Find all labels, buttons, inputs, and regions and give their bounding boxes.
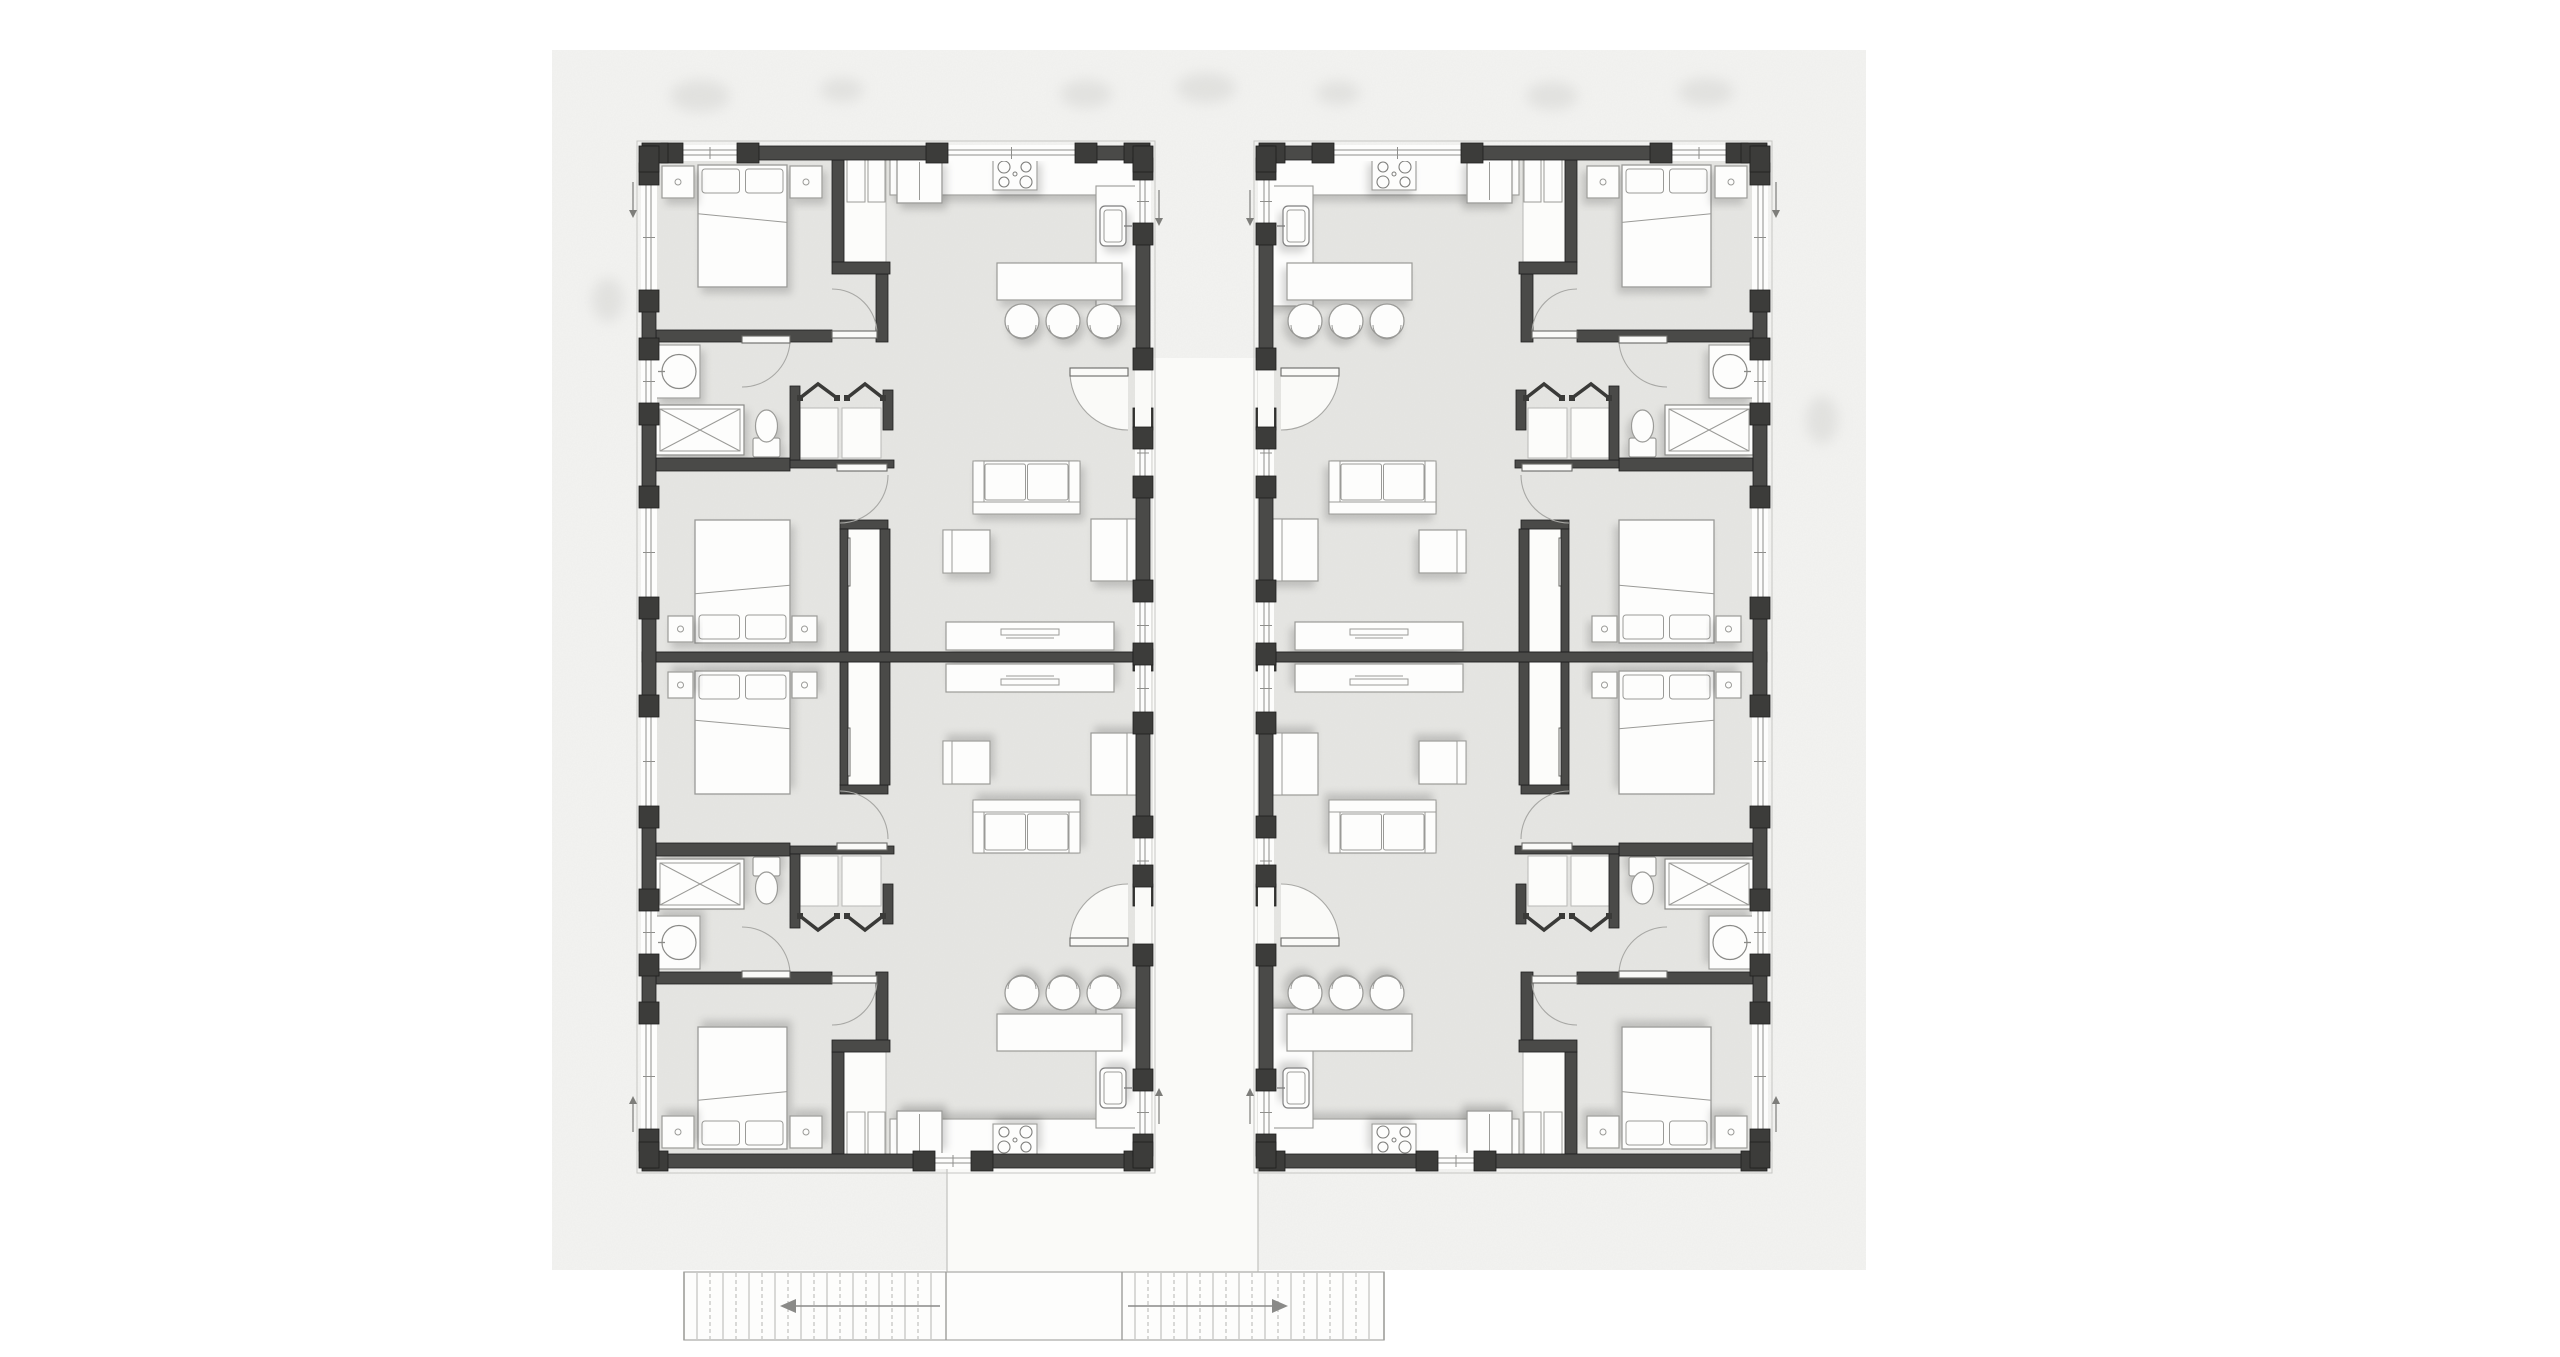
desk-top <box>1295 664 1463 692</box>
bedroom2-closet-bay <box>848 662 880 785</box>
wall-pier <box>1133 348 1153 370</box>
nightstand-top <box>790 166 822 198</box>
armchair <box>943 530 990 573</box>
armchair <box>1419 741 1466 784</box>
wall-pier <box>1750 806 1770 828</box>
door-leaf <box>1619 971 1667 978</box>
bifold-pivot <box>834 395 840 401</box>
door-opening <box>1258 887 1274 944</box>
wall-pier <box>1256 712 1276 734</box>
toilet-bowl <box>1632 410 1654 442</box>
nightstand-top <box>1587 1116 1619 1148</box>
nightstand-top <box>792 616 817 642</box>
nightstand-top <box>1592 672 1617 698</box>
interior-wall <box>832 1040 890 1052</box>
door-leaf <box>742 336 790 343</box>
toilet-bowl <box>756 410 778 442</box>
wall-pier <box>1256 223 1276 245</box>
bar-stool <box>1087 975 1121 1010</box>
floor-plan-svg <box>0 0 2560 1357</box>
nightstand-top <box>792 672 817 698</box>
door-leaf <box>742 971 790 978</box>
sofa-cushion <box>985 814 1026 850</box>
sofa-cushion <box>1384 814 1425 850</box>
armchair <box>1273 519 1318 581</box>
bifold-pivot <box>1559 395 1565 401</box>
toilet <box>753 857 780 904</box>
bedroom2-closet-bay <box>1529 529 1561 652</box>
kitchen-island <box>1287 263 1412 300</box>
sofa-cushion <box>1341 464 1382 500</box>
bar-stool <box>1288 975 1322 1010</box>
pillow <box>699 615 740 639</box>
bar-stool <box>1370 304 1404 339</box>
interior-wall <box>1519 262 1577 274</box>
kitchen-island <box>997 1014 1122 1051</box>
door-opening <box>1258 370 1274 427</box>
wall-pier <box>737 143 759 163</box>
wardrobe-panel <box>1524 1112 1541 1156</box>
nightstand <box>790 166 822 198</box>
wall-corner <box>1133 1142 1153 1168</box>
bar-stool <box>1288 304 1322 339</box>
bed-primary <box>698 165 787 287</box>
keyboard <box>1001 679 1059 685</box>
interior-wall <box>656 458 790 471</box>
wall-pier <box>639 806 659 828</box>
tree-shadow <box>1060 80 1112 108</box>
shower <box>656 405 744 455</box>
nightstand <box>1587 166 1619 198</box>
wall-pier <box>1750 486 1770 508</box>
bar-stool <box>1370 975 1404 1010</box>
bifold-pivot <box>834 913 840 919</box>
party-wall <box>1259 652 1767 662</box>
hall-closet-bay <box>842 856 881 906</box>
interior-wall <box>1521 972 1533 1040</box>
bath-vanity <box>656 345 700 398</box>
pillow <box>1623 675 1664 699</box>
nightstand-top <box>662 1116 694 1148</box>
wardrobe-panel <box>847 1112 865 1156</box>
nightstand-top <box>1592 616 1617 642</box>
bath-vanity <box>1709 345 1753 398</box>
floor-plan-page <box>0 0 2560 1357</box>
bifold-pivot <box>1559 913 1565 919</box>
stove <box>1372 1124 1416 1156</box>
nightstand-top <box>1715 166 1747 198</box>
fridge <box>897 159 942 203</box>
tree-shadow <box>1176 73 1236 103</box>
interior-wall <box>1521 274 1533 342</box>
nightstand <box>792 616 817 642</box>
bed-second <box>1619 520 1714 643</box>
party-wall <box>642 652 1150 662</box>
bath-vanity <box>656 916 700 969</box>
door-leaf <box>1281 368 1339 376</box>
door-leaf <box>1070 938 1128 946</box>
desk <box>1295 622 1463 650</box>
nightstand <box>792 672 817 698</box>
stove <box>1372 158 1416 190</box>
wall-pier <box>1133 816 1153 838</box>
armchair-back <box>943 530 952 573</box>
nightstand-top <box>668 672 693 698</box>
pillow <box>746 1121 784 1145</box>
nightstand <box>1587 1116 1619 1148</box>
sofa-cushion <box>985 464 1026 500</box>
wall-bottom <box>642 1151 1150 1171</box>
wall-pier <box>1650 143 1672 163</box>
armchair <box>943 741 990 784</box>
tree-shadow <box>820 78 864 102</box>
interior-wall <box>840 520 888 529</box>
interior-wall <box>832 1052 844 1154</box>
wall-top <box>642 143 1150 163</box>
nightstand <box>1716 616 1741 642</box>
bath-vanity <box>1709 916 1753 969</box>
pillow <box>1670 169 1708 193</box>
wall-corner <box>1256 1142 1276 1168</box>
door-leaf <box>1619 336 1667 343</box>
sofa-back <box>973 502 1080 514</box>
bed-second <box>695 520 790 643</box>
armchair-back <box>1273 733 1282 795</box>
door-leaf <box>1532 331 1577 338</box>
bifold-pivot <box>844 913 850 919</box>
nightstand <box>1715 1116 1747 1148</box>
pillow <box>1670 615 1711 639</box>
fridge <box>897 1111 942 1155</box>
interior-wall <box>1565 160 1577 262</box>
wall-pier <box>1256 865 1276 887</box>
wall-pier <box>1256 348 1276 370</box>
door-leaf <box>837 843 887 850</box>
interior-wall <box>832 262 890 274</box>
hall-closet-bay <box>1528 408 1567 458</box>
toilet <box>1629 410 1656 457</box>
armchair-back <box>1127 733 1136 795</box>
wall-pier <box>639 889 659 911</box>
floor-plan-canvas <box>0 0 2560 1357</box>
pillow <box>746 675 787 699</box>
toilet <box>1629 857 1656 904</box>
nightstand <box>1592 616 1617 642</box>
armchair-back <box>1127 519 1136 581</box>
bifold-pivot <box>1606 395 1612 401</box>
interior-wall <box>1565 1052 1577 1154</box>
sofa <box>1329 461 1436 514</box>
bedroom2-closet-bay <box>1529 662 1561 785</box>
nightstand-top <box>668 616 693 642</box>
fridge <box>1467 1111 1512 1155</box>
shower <box>1665 859 1753 909</box>
wall-pier <box>1750 889 1770 911</box>
armchair <box>1091 733 1136 795</box>
door-leaf <box>1522 843 1572 850</box>
desk-top <box>1295 622 1463 650</box>
bifold-pivot <box>797 395 803 401</box>
bifold-pivot <box>844 395 850 401</box>
sofa-cushion <box>1384 464 1425 500</box>
wall-pier <box>1133 712 1153 734</box>
wall-corner <box>1750 1142 1770 1168</box>
wall-corner <box>1750 146 1770 172</box>
wall-pier <box>1474 1151 1496 1171</box>
wall-pier <box>913 1151 935 1171</box>
sofa-cushion <box>1028 814 1069 850</box>
wall-segment <box>642 1154 1150 1168</box>
wall-pier <box>1750 695 1770 717</box>
hall-closet-bay <box>1528 856 1567 906</box>
bed-primary <box>1622 1027 1711 1149</box>
wall-pier <box>1256 476 1276 498</box>
interior-wall <box>880 662 890 785</box>
shower <box>656 859 744 909</box>
nightstand <box>1715 166 1747 198</box>
stove <box>993 158 1037 190</box>
interior-wall <box>840 529 848 652</box>
desk-top <box>946 622 1114 650</box>
hall-closet-bay <box>800 408 838 458</box>
interior-wall <box>1561 662 1569 785</box>
wall-pier <box>1416 1151 1438 1171</box>
interior-wall <box>1619 458 1753 471</box>
armchair-back <box>1457 530 1466 573</box>
nightstand <box>790 1116 822 1148</box>
wall-pier <box>1133 580 1153 602</box>
wall-pier <box>1133 643 1153 665</box>
nightstand-top <box>790 1116 822 1148</box>
bifold-pivot <box>880 395 886 401</box>
wardrobe-panel <box>868 1112 885 1156</box>
kitchen-island <box>1287 1014 1412 1051</box>
sofa-cushion <box>1341 814 1382 850</box>
nightstand-top <box>1716 672 1741 698</box>
toilet <box>753 410 780 457</box>
wall-pier <box>1750 403 1770 425</box>
desk <box>1295 664 1463 692</box>
wall-pier <box>1133 427 1153 449</box>
hall-closet-bay <box>842 408 881 458</box>
sofa <box>1329 800 1436 853</box>
door-opening <box>1135 887 1151 944</box>
wall-pier <box>1133 865 1153 887</box>
wall-corner <box>639 1142 659 1168</box>
interior-wall <box>840 785 888 794</box>
nightstand <box>662 166 694 198</box>
exterior-stairs <box>684 1272 1384 1340</box>
interior-wall <box>1519 1040 1577 1052</box>
keyboard <box>1350 629 1408 635</box>
wall-pier <box>639 338 659 360</box>
wall-pier <box>639 486 659 508</box>
wall-pier <box>1750 338 1770 360</box>
door-leaf <box>832 976 877 983</box>
wall-pier <box>1750 290 1770 312</box>
interior-wall <box>1561 529 1569 652</box>
pillow <box>1623 615 1664 639</box>
tree-shadow <box>1806 396 1838 444</box>
wall-pier <box>1256 427 1276 449</box>
armchair <box>1419 530 1466 573</box>
nightstand <box>1592 672 1617 698</box>
wall-pier <box>1133 944 1153 966</box>
interior-wall <box>1619 843 1753 856</box>
interior-wall <box>1521 785 1569 794</box>
kitchen-island <box>997 263 1122 300</box>
walkway-to-stairs <box>947 1168 1258 1272</box>
bar-stool <box>1329 975 1363 1010</box>
interior-wall <box>880 529 890 652</box>
wall-pier <box>1256 580 1276 602</box>
bar-stool <box>1046 304 1080 339</box>
wall-pier <box>1312 143 1334 163</box>
desk <box>946 664 1114 692</box>
wall-bottom <box>1259 1151 1767 1171</box>
wall-pier <box>639 290 659 312</box>
armchair-back <box>1273 519 1282 581</box>
wall-left <box>1750 146 1770 1168</box>
nightstand <box>1716 672 1741 698</box>
sofa-cushion <box>1028 464 1069 500</box>
unit-left <box>629 141 1163 1173</box>
door-opening <box>1135 370 1151 427</box>
tree-shadow <box>1526 82 1578 110</box>
interior-wall <box>832 160 844 262</box>
bed-primary <box>1622 165 1711 287</box>
wall-pier <box>639 695 659 717</box>
pillow <box>746 169 784 193</box>
wardrobe-panel <box>868 158 885 202</box>
bedroom2-closet-bay <box>848 529 880 652</box>
bifold-pivot <box>1523 395 1529 401</box>
interior-wall <box>656 843 790 856</box>
pillow <box>1670 675 1711 699</box>
bed-second <box>695 671 790 794</box>
keyboard <box>1350 679 1408 685</box>
interior-wall <box>1521 520 1569 529</box>
wall-pier <box>639 403 659 425</box>
wall-right <box>1256 146 1276 1168</box>
tree-shadow <box>1316 81 1360 105</box>
island-top <box>997 1014 1122 1051</box>
interior-wall <box>840 662 848 785</box>
wall-pier <box>639 954 659 976</box>
hall-closet-bay <box>1571 408 1609 458</box>
nightstand-top <box>1587 166 1619 198</box>
wall-pier <box>1750 1002 1770 1024</box>
tree-shadow <box>1678 78 1734 106</box>
armchair-back <box>1457 741 1466 784</box>
toilet-bowl <box>1632 872 1654 904</box>
island-top <box>997 263 1122 300</box>
pillow <box>1626 169 1664 193</box>
wall-pier <box>1133 476 1153 498</box>
bifold-pivot <box>1523 913 1529 919</box>
bifold-pivot <box>1569 395 1575 401</box>
interior-wall <box>876 972 888 1040</box>
pillow <box>702 169 740 193</box>
nightstand-top <box>1715 1116 1747 1148</box>
interior-wall <box>876 274 888 342</box>
desk-top <box>946 664 1114 692</box>
toilet-bowl <box>756 872 778 904</box>
wardrobe-panel <box>1544 1112 1562 1156</box>
stove <box>993 1124 1037 1156</box>
wardrobe-panel <box>1544 158 1562 202</box>
wall-pier <box>1750 597 1770 619</box>
pillow <box>746 615 787 639</box>
door-leaf <box>1281 938 1339 946</box>
island-top <box>1287 263 1412 300</box>
wall-corner <box>1133 146 1153 172</box>
wall-pier <box>639 1002 659 1024</box>
wall-pier <box>926 143 948 163</box>
nightstand <box>668 672 693 698</box>
wall-corner <box>1256 146 1276 172</box>
wardrobe-panel <box>1524 158 1541 202</box>
walkway-between-units <box>1152 358 1258 1272</box>
fridge <box>1467 159 1512 203</box>
island-top <box>1287 1014 1412 1051</box>
keyboard <box>1001 629 1059 635</box>
bar-stool <box>1087 304 1121 339</box>
unit-right <box>1246 141 1780 1173</box>
tree-shadow <box>592 278 624 322</box>
wall-pier <box>1133 223 1153 245</box>
bar-stool <box>1005 304 1039 339</box>
pillow <box>1626 1121 1664 1145</box>
wall-pier <box>1750 954 1770 976</box>
nightstand-top <box>662 166 694 198</box>
bifold-pivot <box>880 913 886 919</box>
wall-segment <box>1259 1154 1767 1168</box>
pillow <box>702 1121 740 1145</box>
sofa-back <box>1329 800 1436 812</box>
wall-pier <box>1133 1069 1153 1091</box>
wall-pier <box>1256 643 1276 665</box>
desk <box>946 622 1114 650</box>
wall-corner <box>639 146 659 172</box>
bar-stool <box>1046 975 1080 1010</box>
nightstand <box>662 1116 694 1148</box>
bed-primary <box>698 1027 787 1149</box>
wall-pier <box>1256 816 1276 838</box>
hall-closet-bay <box>800 856 838 906</box>
door-leaf <box>1070 368 1128 376</box>
pillow <box>1670 1121 1708 1145</box>
wall-right <box>1133 146 1153 1168</box>
bar-stool <box>1005 975 1039 1010</box>
door-leaf <box>1522 464 1572 471</box>
nightstand-top <box>1716 616 1741 642</box>
tree-shadow <box>670 80 730 112</box>
pillow <box>699 675 740 699</box>
sofa-back <box>973 800 1080 812</box>
nightstand <box>668 616 693 642</box>
bifold-pivot <box>797 913 803 919</box>
bar-stool <box>1329 304 1363 339</box>
wall-pier <box>1256 944 1276 966</box>
door-leaf <box>1532 976 1577 983</box>
shower <box>1665 405 1753 455</box>
interior-wall <box>1519 529 1529 652</box>
wall-pier <box>1075 143 1097 163</box>
door-leaf <box>832 331 877 338</box>
wall-left <box>639 146 659 1168</box>
bifold-pivot <box>1569 913 1575 919</box>
